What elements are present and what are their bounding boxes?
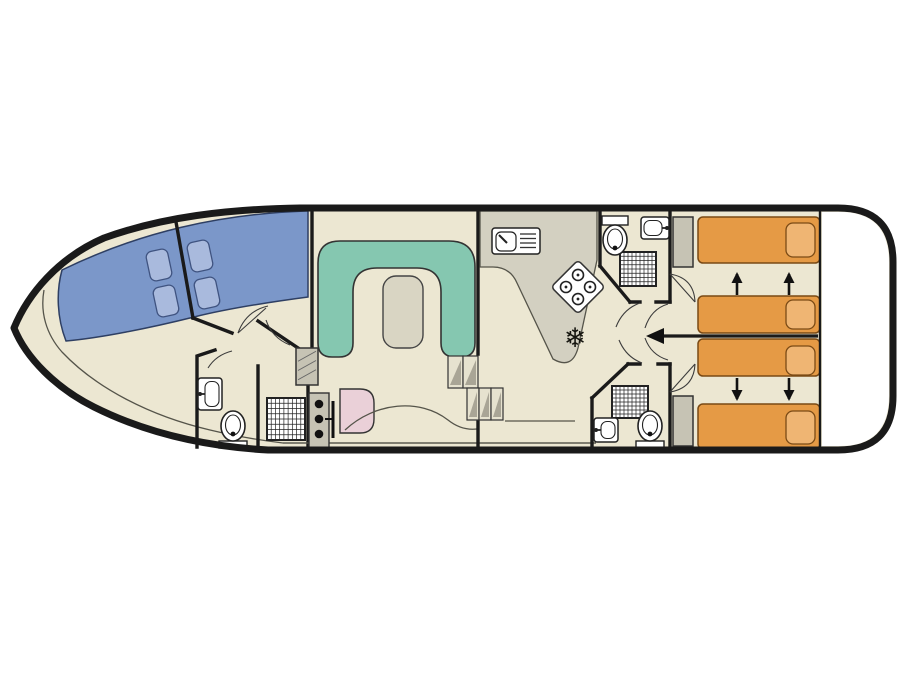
boat-floor-plan-page: ❄ bbox=[0, 0, 901, 676]
steps bbox=[467, 388, 503, 420]
heater-dot bbox=[315, 400, 324, 409]
bed-pillow bbox=[786, 411, 815, 444]
heater-dots bbox=[315, 400, 324, 439]
wardrobe bbox=[673, 396, 693, 446]
toilet bbox=[636, 411, 664, 448]
boat-floor-plan: ❄ bbox=[0, 0, 901, 676]
helm-seat bbox=[340, 389, 374, 433]
sink bbox=[197, 378, 222, 410]
shower-tray bbox=[267, 398, 305, 440]
heater-dot bbox=[315, 415, 324, 424]
bed-pillow bbox=[786, 223, 815, 257]
stern-deck bbox=[822, 212, 889, 446]
freezer-icon: ❄ bbox=[564, 323, 587, 354]
cabin-beds bbox=[698, 217, 820, 449]
steps bbox=[448, 356, 478, 388]
sink bbox=[593, 418, 618, 442]
saloon-table bbox=[383, 276, 423, 348]
shower-tray bbox=[620, 252, 656, 286]
toilet bbox=[602, 216, 628, 255]
heater-dot bbox=[315, 430, 324, 439]
sink bbox=[641, 217, 670, 239]
galley-sink bbox=[492, 228, 540, 254]
wardrobe bbox=[673, 217, 693, 267]
bed-pillow bbox=[786, 300, 815, 329]
bed-pillow bbox=[786, 346, 815, 375]
